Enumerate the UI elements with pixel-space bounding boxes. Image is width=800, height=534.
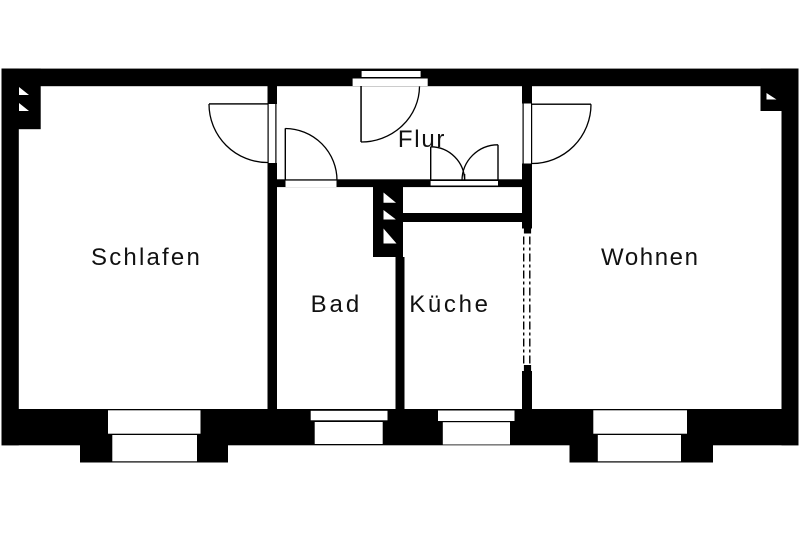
svg-text:Küche: Küche xyxy=(409,291,488,318)
svg-text:Bad: Bad xyxy=(311,291,360,318)
svg-text:Flur: Flur xyxy=(398,126,445,153)
